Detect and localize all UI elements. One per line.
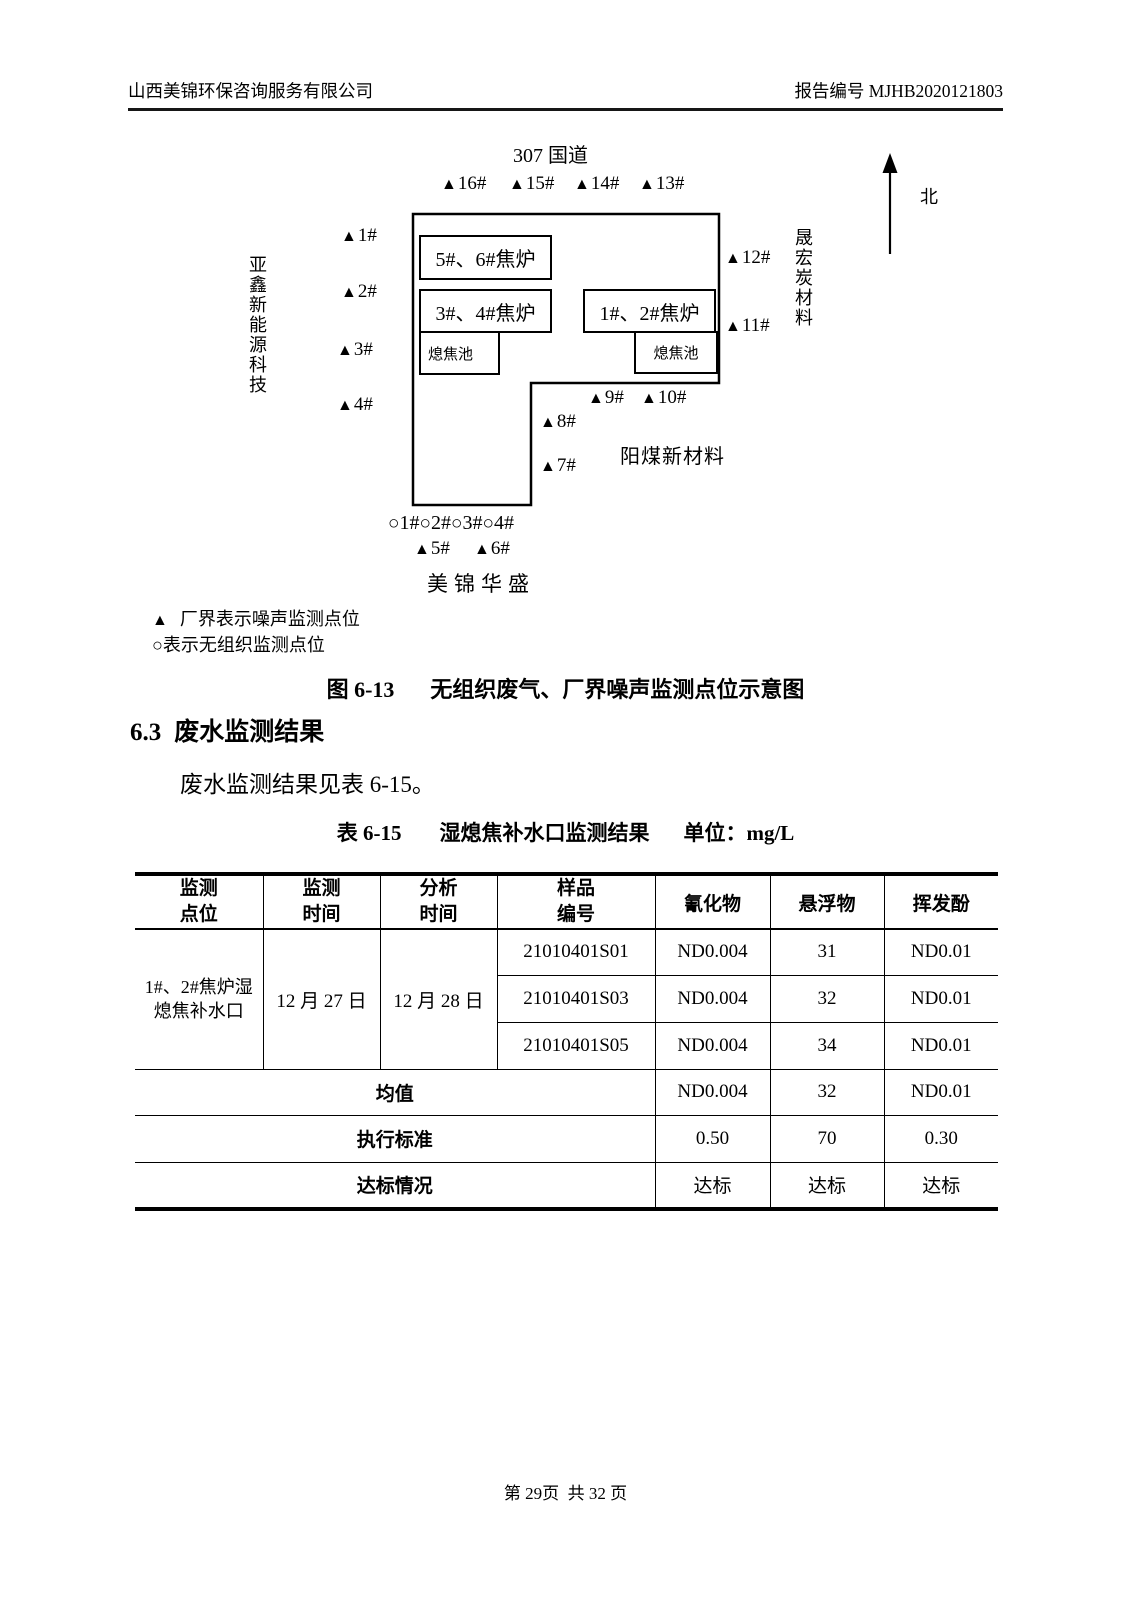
circle-marker-icon: ○: [482, 513, 493, 534]
col-header-sample-id: 样品 编号: [497, 874, 655, 929]
building-label: 3#、4#焦炉: [436, 297, 536, 326]
triangle-marker-icon: ▲: [152, 612, 168, 629]
monitoring-point-9: ▲9#: [588, 387, 624, 410]
unorganized-points-row: ○1#○2#○3#○4#: [388, 512, 514, 535]
cell-sample-id: 21010401S03: [497, 975, 655, 1022]
col-header-suspended-solids: 悬浮物: [770, 874, 884, 929]
header-rule: [128, 108, 1003, 111]
cell-suspended-solids: 70: [770, 1115, 884, 1162]
cell-cyanide: 0.50: [655, 1115, 770, 1162]
triangle-marker-icon: ▲: [474, 541, 491, 558]
road-label: 307 国道: [513, 139, 588, 168]
triangle-marker-icon: ▲: [725, 250, 742, 267]
report-number: 报告编号 MJHB2020121803: [794, 78, 1003, 103]
point-label: 14#: [591, 173, 620, 194]
quench-pool-east-box: 熄焦池: [634, 331, 718, 374]
cell-sample-id: 21010401S01: [497, 929, 655, 975]
monitoring-point-5: ▲5#: [414, 538, 450, 561]
cell-volatile-phenol: ND0.01: [884, 1069, 998, 1115]
triangle-marker-icon: ▲: [341, 284, 358, 301]
cell-monitor-time: 12 月 27 日: [263, 929, 380, 1069]
monitoring-point-15: ▲15#: [509, 173, 554, 196]
point-label: 3#: [462, 512, 482, 534]
cell-sample-id: 21010401S05: [497, 1022, 655, 1069]
cell-site: 1#、2#焦炉湿 熄焦补水口: [135, 929, 263, 1069]
legend-unorganized-points: ○表示无组织监测点位: [152, 631, 325, 657]
results-table-wrapper: 监测 点位 监测 时间 分析 时间 样品 编号 氰化物 悬浮物 挥发酚 1#、2…: [135, 872, 998, 1211]
west-neighbor-label: 亚鑫新能源科技: [248, 255, 266, 395]
triangle-marker-icon: ▲: [414, 541, 431, 558]
monitoring-point-14: ▲14#: [574, 173, 619, 196]
triangle-marker-icon: ▲: [337, 397, 354, 414]
monitoring-point-11: ▲11#: [725, 315, 770, 338]
building-label: 5#、6#焦炉: [436, 243, 536, 272]
cell-suspended-solids: 达标: [770, 1162, 884, 1209]
legend-noise-points: ▲厂界表示噪声监测点位: [152, 605, 360, 631]
point-label: 1#: [358, 225, 377, 246]
triangle-marker-icon: ▲: [509, 176, 526, 193]
point-label: 8#: [557, 411, 576, 432]
point-label: 4#: [494, 512, 514, 534]
section-paragraph: 废水监测结果见表 6-15。: [180, 765, 435, 799]
circle-marker-icon: ○: [451, 513, 462, 534]
triangle-marker-icon: ▲: [441, 176, 458, 193]
point-label: 2#: [358, 281, 377, 302]
monitoring-point-10: ▲10#: [641, 387, 686, 410]
point-label: 9#: [605, 387, 624, 408]
triangle-marker-icon: ▲: [540, 414, 557, 431]
triangle-marker-icon: ▲: [540, 458, 557, 475]
triangle-marker-icon: ▲: [725, 318, 742, 335]
table-row: 1#、2#焦炉湿 熄焦补水口 12 月 27 日 12 月 28 日 21010…: [135, 929, 998, 975]
east-neighbor-label: 晟宏炭材料: [794, 228, 812, 328]
legend-text: 厂界表示噪声监测点位: [180, 609, 360, 629]
cell-volatile-phenol: ND0.01: [884, 1022, 998, 1069]
triangle-marker-icon: ▲: [337, 342, 354, 359]
point-label: 12#: [742, 247, 771, 268]
table-header-row: 监测 点位 监测 时间 分析 时间 样品 编号 氰化物 悬浮物 挥发酚: [135, 874, 998, 929]
north-arrow-head: [883, 153, 898, 173]
cell-suspended-solids: 31: [770, 929, 884, 975]
figure-caption: 图 6-13无组织废气、厂界噪声监测点位示意图: [0, 672, 1131, 704]
point-label: 1#: [399, 512, 419, 534]
north-label: 北: [920, 183, 938, 209]
section-heading: 6.3废水监测结果: [130, 712, 324, 748]
circle-marker-icon: ○: [388, 513, 399, 534]
quench-pool-west-box: 熄焦池: [419, 331, 500, 375]
table-caption-label: 表 6-15: [337, 821, 402, 845]
triangle-marker-icon: ▲: [641, 390, 658, 407]
point-label: 5#: [431, 538, 450, 559]
monitoring-point-13: ▲13#: [639, 173, 684, 196]
cell-volatile-phenol: ND0.01: [884, 975, 998, 1022]
page-header: 山西美锦环保咨询服务有限公司 报告编号 MJHB2020121803: [128, 78, 1003, 103]
coke-oven-5-6-box: 5#、6#焦炉: [419, 235, 552, 280]
cell-cyanide: ND0.004: [655, 975, 770, 1022]
section-title: 废水监测结果: [174, 719, 324, 746]
cell-cyanide: ND0.004: [655, 1069, 770, 1115]
table-row-mean: 均值 ND0.004 32 ND0.01: [135, 1069, 998, 1115]
point-label: 15#: [526, 173, 555, 194]
legend-text: 表示无组织监测点位: [163, 635, 325, 655]
triangle-marker-icon: ▲: [574, 176, 591, 193]
coke-oven-1-2-box: 1#、2#焦炉: [583, 289, 716, 333]
circle-marker-icon: ○: [152, 635, 163, 655]
company-name: 山西美锦环保咨询服务有限公司: [128, 78, 373, 103]
cell-suspended-solids: 34: [770, 1022, 884, 1069]
south-neighbor-label: 美锦华盛: [427, 568, 535, 598]
col-header-site: 监测 点位: [135, 874, 263, 929]
point-label: 11#: [742, 315, 770, 336]
building-label: 1#、2#焦炉: [600, 297, 700, 326]
figure-caption-label: 图 6-13: [327, 677, 395, 702]
table-caption-unit: 单位：mg/L: [683, 821, 794, 845]
results-table: 监测 点位 监测 时间 分析 时间 样品 编号 氰化物 悬浮物 挥发酚 1#、2…: [135, 872, 998, 1211]
cell-volatile-phenol: 达标: [884, 1162, 998, 1209]
monitoring-point-2: ▲2#: [341, 281, 377, 304]
monitoring-point-6: ▲6#: [474, 538, 510, 561]
col-header-volatile-phenol: 挥发酚: [884, 874, 998, 929]
monitoring-point-12: ▲12#: [725, 247, 770, 270]
point-label: 2#: [431, 512, 451, 534]
cell-mean-label: 均值: [135, 1069, 655, 1115]
southeast-neighbor-label: 阳煤新材料: [620, 440, 725, 469]
point-label: 7#: [557, 455, 576, 476]
col-header-cyanide: 氰化物: [655, 874, 770, 929]
point-label: 10#: [658, 387, 687, 408]
building-label: 熄焦池: [428, 343, 473, 364]
triangle-marker-icon: ▲: [639, 176, 656, 193]
monitoring-point-8: ▲8#: [540, 411, 576, 434]
monitoring-point-1: ▲1#: [341, 225, 377, 248]
circle-marker-icon: ○: [419, 513, 430, 534]
figure-caption-text: 无组织废气、厂界噪声监测点位示意图: [430, 677, 804, 702]
page-footer: 第 29页 共 32 页: [0, 1479, 1131, 1504]
triangle-marker-icon: ▲: [341, 228, 358, 245]
table-caption: 表 6-15湿熄焦补水口监测结果单位：mg/L: [0, 817, 1131, 847]
point-label: 3#: [354, 339, 373, 360]
col-header-analysis-time: 分析 时间: [380, 874, 497, 929]
monitoring-point-3: ▲3#: [337, 339, 373, 362]
site-diagram-canvas: [0, 0, 1131, 700]
cell-cyanide: 达标: [655, 1162, 770, 1209]
section-number: 6.3: [130, 719, 161, 746]
cell-suspended-solids: 32: [770, 975, 884, 1022]
point-label: 16#: [458, 173, 487, 194]
cell-cyanide: ND0.004: [655, 1022, 770, 1069]
table-row-compliance: 达标情况 达标 达标 达标: [135, 1162, 998, 1209]
col-header-monitor-time: 监测 时间: [263, 874, 380, 929]
point-label: 13#: [656, 173, 685, 194]
cell-compliance-label: 达标情况: [135, 1162, 655, 1209]
triangle-marker-icon: ▲: [588, 390, 605, 407]
table-row-standard: 执行标准 0.50 70 0.30: [135, 1115, 998, 1162]
cell-cyanide: ND0.004: [655, 929, 770, 975]
cell-volatile-phenol: ND0.01: [884, 929, 998, 975]
point-label: 6#: [491, 538, 510, 559]
cell-suspended-solids: 32: [770, 1069, 884, 1115]
coke-oven-3-4-box: 3#、4#焦炉: [419, 289, 552, 333]
building-label: 熄焦池: [653, 342, 698, 363]
monitoring-point-4: ▲4#: [337, 394, 373, 417]
report-page: 山西美锦环保咨询服务有限公司 报告编号 MJHB2020121803 307 国…: [0, 0, 1131, 1600]
point-label: 4#: [354, 394, 373, 415]
cell-volatile-phenol: 0.30: [884, 1115, 998, 1162]
monitoring-point-16: ▲16#: [441, 173, 486, 196]
monitoring-point-7: ▲7#: [540, 455, 576, 478]
table-caption-text: 湿熄焦补水口监测结果: [439, 821, 649, 845]
cell-analysis-time: 12 月 28 日: [380, 929, 497, 1069]
cell-standard-label: 执行标准: [135, 1115, 655, 1162]
